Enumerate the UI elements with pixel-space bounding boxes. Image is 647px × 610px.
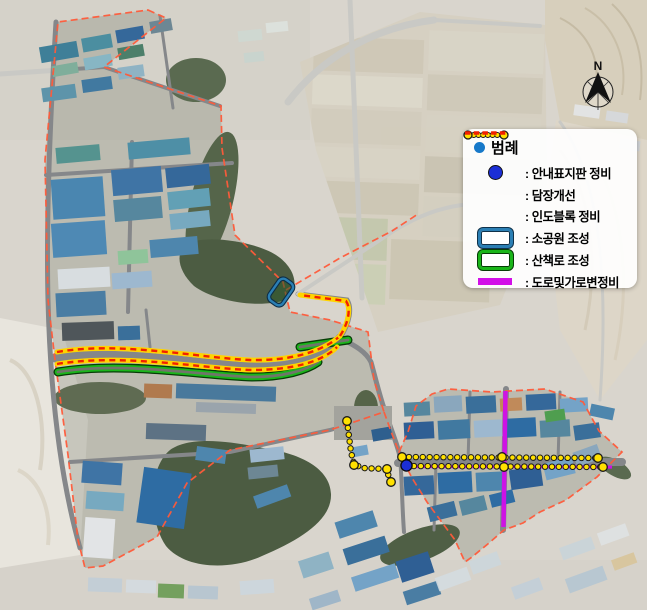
- map-graphic: [404, 401, 431, 416]
- map-graphic: [58, 267, 111, 290]
- map-graphic: [51, 220, 107, 258]
- legend-item-sidewalk: : 인도블록 정비: [472, 206, 628, 228]
- map-graphic: [312, 74, 423, 108]
- map-graphic: [126, 579, 156, 593]
- map-graphic: [118, 326, 140, 341]
- map-graphic: [118, 249, 149, 265]
- legend-panel: 범례 : 안내표지판 정비 : 담장개선 : 인도블록 정비 : 소공원 조성: [463, 129, 637, 288]
- map-graphic: [434, 395, 463, 412]
- map-graphic: [62, 321, 115, 341]
- map-graphic: [466, 395, 497, 414]
- fence-node: [387, 478, 396, 487]
- map-graphic: [427, 74, 543, 114]
- legend-item-trail: : 산책로 조성: [472, 249, 628, 271]
- map-graphic: [240, 579, 275, 595]
- map-graphic: [311, 108, 422, 146]
- map-graphic: [166, 58, 226, 102]
- fence-node: [599, 463, 608, 472]
- map-graphic: [54, 382, 146, 414]
- aerial-map: N: [0, 0, 647, 610]
- fence-node: [500, 463, 509, 472]
- map-graphic: [196, 402, 256, 414]
- legend-item-park: : 소공원 조성: [472, 227, 628, 249]
- map-graphic: [188, 585, 218, 599]
- map-graphic: [309, 146, 420, 180]
- map-graphic: [244, 51, 265, 63]
- map-graphic: [404, 475, 435, 496]
- blue-rounded-rect-icon: [472, 228, 518, 248]
- legend-bullet-icon: [474, 142, 485, 153]
- legend-item-road: : 도로및가로변정비: [472, 271, 628, 293]
- fence-node: [498, 453, 507, 462]
- fence-node: [383, 465, 392, 474]
- magenta-line-icon: [472, 278, 518, 285]
- green-rounded-rect-icon: [472, 250, 518, 270]
- map-graphic: [55, 291, 106, 318]
- map-graphic: [136, 467, 191, 529]
- map-graphic: [474, 419, 503, 437]
- map-graphic: [51, 176, 106, 220]
- map-graphic: [526, 393, 557, 411]
- map-graphic: [437, 471, 472, 494]
- map-graphic: [158, 584, 184, 599]
- fence-node: [350, 461, 359, 470]
- map-graphic: [111, 271, 152, 290]
- fence-node: [594, 454, 603, 463]
- map-graphic: [81, 461, 122, 486]
- map-graphic: [506, 417, 537, 438]
- map-graphic: [113, 196, 163, 222]
- blue-circle-icon: [472, 165, 518, 180]
- legend-item-signboard: : 안내표지판 정비: [472, 162, 628, 184]
- map-graphic: [88, 577, 122, 592]
- signboard-marker: [401, 460, 412, 471]
- map-graphic: [111, 166, 163, 196]
- map-graphic: [144, 384, 172, 399]
- map-graphic: [438, 419, 471, 440]
- map-graphic: [428, 30, 544, 74]
- legend-item-fence: : 담장개선: [472, 184, 628, 206]
- map-screenshot: N 범례 : 안내표지판 정비 : 담장개선: [0, 0, 647, 610]
- fence-node: [343, 417, 352, 426]
- map-graphic: [146, 423, 207, 441]
- map-graphic: [85, 491, 124, 512]
- map-graphic: [540, 419, 571, 438]
- compass-label: N: [594, 59, 603, 73]
- map-graphic: [83, 517, 116, 559]
